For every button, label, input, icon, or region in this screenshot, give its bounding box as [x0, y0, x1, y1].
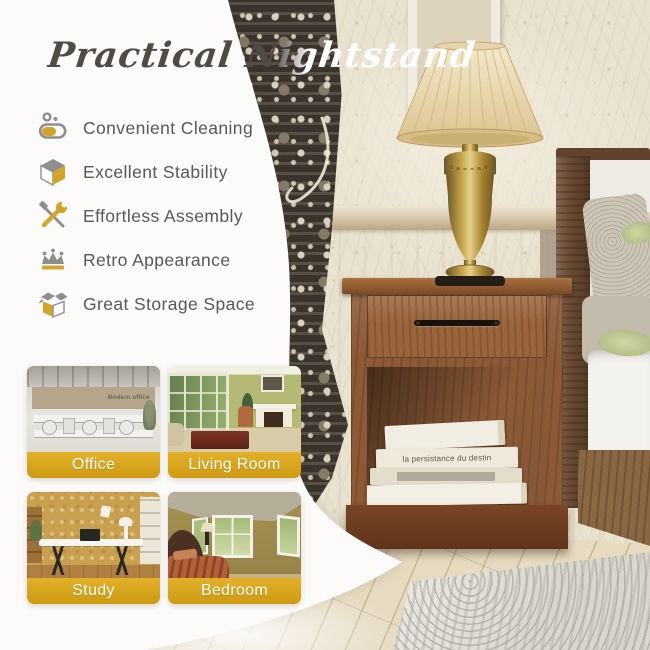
living-room-thumbnail — [168, 366, 301, 452]
feature-item-stability: Excellent Stability — [36, 150, 255, 194]
bay-window — [277, 515, 300, 558]
sponge-clean-icon — [36, 111, 70, 145]
feature-label: Retro Appearance — [83, 250, 230, 271]
crown-icon — [36, 243, 70, 277]
study-plant — [30, 520, 42, 541]
feature-list: Convenient Cleaning Excellent Stability … — [36, 106, 255, 326]
feature-item-storage: Great Storage Space — [36, 282, 255, 326]
armchair — [238, 406, 253, 427]
open-box-icon — [36, 287, 70, 321]
wrench-screwdriver-icon — [36, 199, 70, 233]
feature-label: Excellent Stability — [83, 162, 228, 183]
room-label: Living Room — [168, 452, 301, 478]
drawer-unit — [103, 418, 115, 434]
living-room-windows — [168, 373, 229, 430]
fireplace — [256, 408, 292, 427]
feature-label: Convenient Cleaning — [83, 118, 253, 139]
room-card-study: Study — [27, 492, 160, 604]
study-thumbnail — [27, 492, 160, 578]
product-infographic: la persistance du destin — [0, 0, 650, 650]
wall-note — [101, 505, 112, 517]
wall-art — [261, 375, 284, 391]
room-label: Office — [27, 452, 160, 478]
feature-label: Effortless Assembly — [83, 206, 243, 227]
office-chair — [119, 420, 134, 435]
feature-item-retro: Retro Appearance — [36, 238, 255, 282]
trestle-leg — [43, 545, 73, 575]
office-ceiling — [27, 366, 160, 387]
laptop — [80, 529, 100, 541]
cube-icon — [36, 155, 70, 189]
office-back-wall: Modern office — [32, 387, 154, 409]
room-label: Bedroom — [168, 578, 301, 604]
sofa — [168, 423, 184, 446]
bay-window — [212, 515, 253, 558]
room-card-bedroom: Bedroom — [168, 492, 301, 604]
trestle-leg — [107, 545, 137, 575]
page-title: Practical Nightstand — [45, 34, 478, 78]
office-wall-text: Modern office — [108, 395, 150, 401]
room-thumbnail-grid: Modern office Office — [27, 366, 301, 604]
room-label: Study — [27, 578, 160, 604]
desk-lamp — [124, 524, 128, 541]
room-card-office: Modern office Office — [27, 366, 160, 478]
bedroom-thumbnail — [168, 492, 301, 578]
feature-item-cleaning: Convenient Cleaning — [36, 106, 255, 150]
coffee-table — [191, 431, 250, 448]
office-chair — [82, 420, 97, 435]
office-plant — [143, 400, 156, 430]
room-card-living-room: Living Room — [168, 366, 301, 478]
office-chair — [42, 420, 57, 435]
bookshelf — [140, 497, 160, 564]
bedside-lamp — [205, 531, 209, 545]
drawer-unit — [63, 418, 75, 434]
office-thumbnail: Modern office — [27, 366, 160, 452]
feature-item-assembly: Effortless Assembly — [36, 194, 255, 238]
feature-label: Great Storage Space — [83, 294, 255, 315]
